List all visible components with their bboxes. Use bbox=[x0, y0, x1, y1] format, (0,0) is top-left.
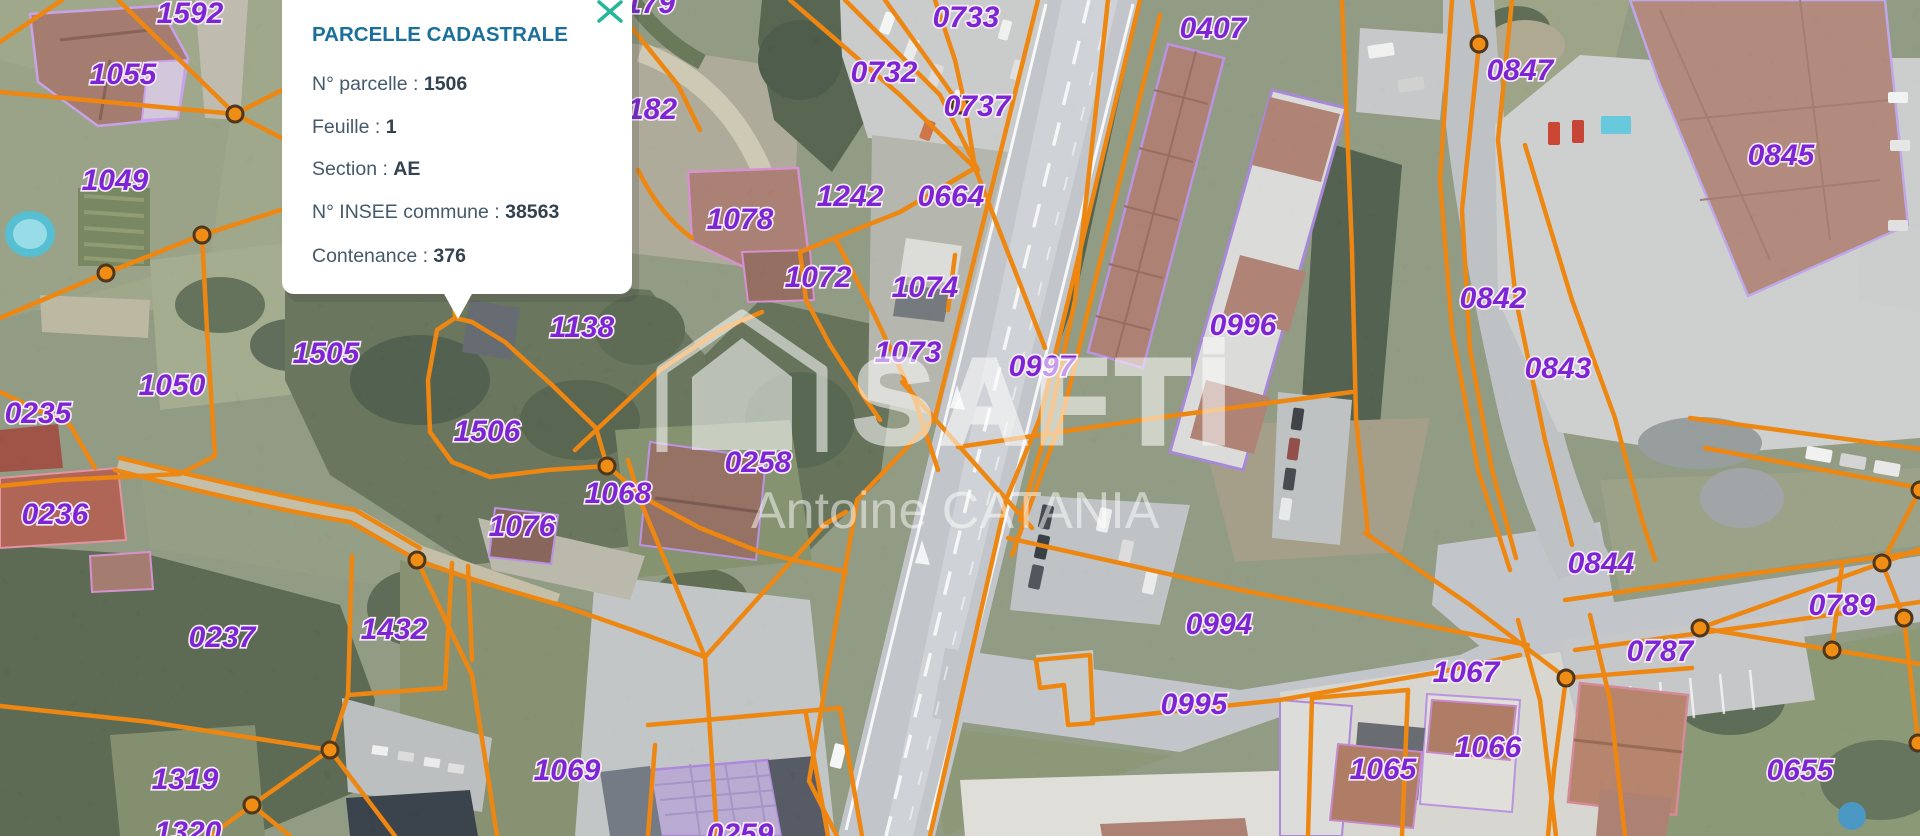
svg-text:0237: 0237 bbox=[189, 621, 257, 654]
svg-text:0845: 0845 bbox=[1748, 139, 1816, 172]
svg-text:1067: 1067 bbox=[1433, 656, 1501, 689]
svg-text:Section : AE: Section : AE bbox=[312, 158, 420, 180]
svg-text:0664: 0664 bbox=[918, 180, 985, 213]
svg-text:0236: 0236 bbox=[22, 498, 89, 531]
svg-text:Feuille : 1: Feuille : 1 bbox=[312, 116, 397, 138]
svg-text:1320: 1320 bbox=[155, 816, 222, 836]
svg-text:1049: 1049 bbox=[82, 164, 149, 197]
svg-text:0259: 0259 bbox=[707, 818, 774, 836]
svg-text:0842: 0842 bbox=[1460, 282, 1527, 315]
svg-text:0407: 0407 bbox=[1180, 12, 1248, 45]
svg-text:1068: 1068 bbox=[585, 477, 652, 510]
svg-text:Antoine CATANIA: Antoine CATANIA bbox=[751, 482, 1160, 540]
svg-text:1505: 1505 bbox=[293, 337, 361, 370]
svg-text:1055: 1055 bbox=[90, 58, 158, 91]
svg-text:1066: 1066 bbox=[1455, 731, 1522, 764]
svg-text:0844: 0844 bbox=[1568, 547, 1635, 580]
svg-text:1319: 1319 bbox=[152, 763, 219, 796]
svg-text:0655: 0655 bbox=[1767, 754, 1835, 787]
svg-text:0994: 0994 bbox=[1186, 608, 1253, 641]
svg-text:SAFTİ: SAFTİ bbox=[853, 333, 1238, 469]
svg-text:0258: 0258 bbox=[725, 446, 792, 479]
svg-text:0995: 0995 bbox=[1161, 688, 1229, 721]
svg-text:1242: 1242 bbox=[817, 180, 884, 213]
svg-text:1065: 1065 bbox=[1350, 753, 1418, 786]
svg-text:0787: 0787 bbox=[1627, 635, 1695, 668]
svg-text:0843: 0843 bbox=[1525, 352, 1592, 385]
svg-text:1050: 1050 bbox=[139, 369, 206, 402]
svg-text:PARCELLE CADASTRALE: PARCELLE CADASTRALE bbox=[312, 23, 568, 46]
svg-text:1138: 1138 bbox=[550, 311, 615, 344]
svg-text:1072: 1072 bbox=[785, 261, 852, 294]
svg-text:N° INSEE commune : 38563: N° INSEE commune : 38563 bbox=[312, 201, 559, 223]
svg-text:1432: 1432 bbox=[361, 613, 428, 646]
svg-text:1078: 1078 bbox=[707, 203, 774, 236]
svg-text:1592: 1592 bbox=[157, 0, 224, 30]
svg-text:1074: 1074 bbox=[892, 271, 959, 304]
svg-text:0733: 0733 bbox=[933, 1, 1000, 34]
svg-text:1069: 1069 bbox=[534, 754, 601, 787]
svg-text:1506: 1506 bbox=[454, 415, 521, 448]
svg-text:0732: 0732 bbox=[851, 56, 918, 89]
svg-text:0235: 0235 bbox=[5, 397, 73, 430]
svg-text:Contenance : 376: Contenance : 376 bbox=[312, 245, 466, 267]
svg-text:0847: 0847 bbox=[1487, 54, 1555, 87]
svg-text:0789: 0789 bbox=[1809, 589, 1876, 622]
svg-text:N° parcelle : 1506: N° parcelle : 1506 bbox=[312, 73, 467, 95]
svg-text:1076: 1076 bbox=[489, 510, 556, 543]
svg-text:0737: 0737 bbox=[944, 90, 1012, 123]
